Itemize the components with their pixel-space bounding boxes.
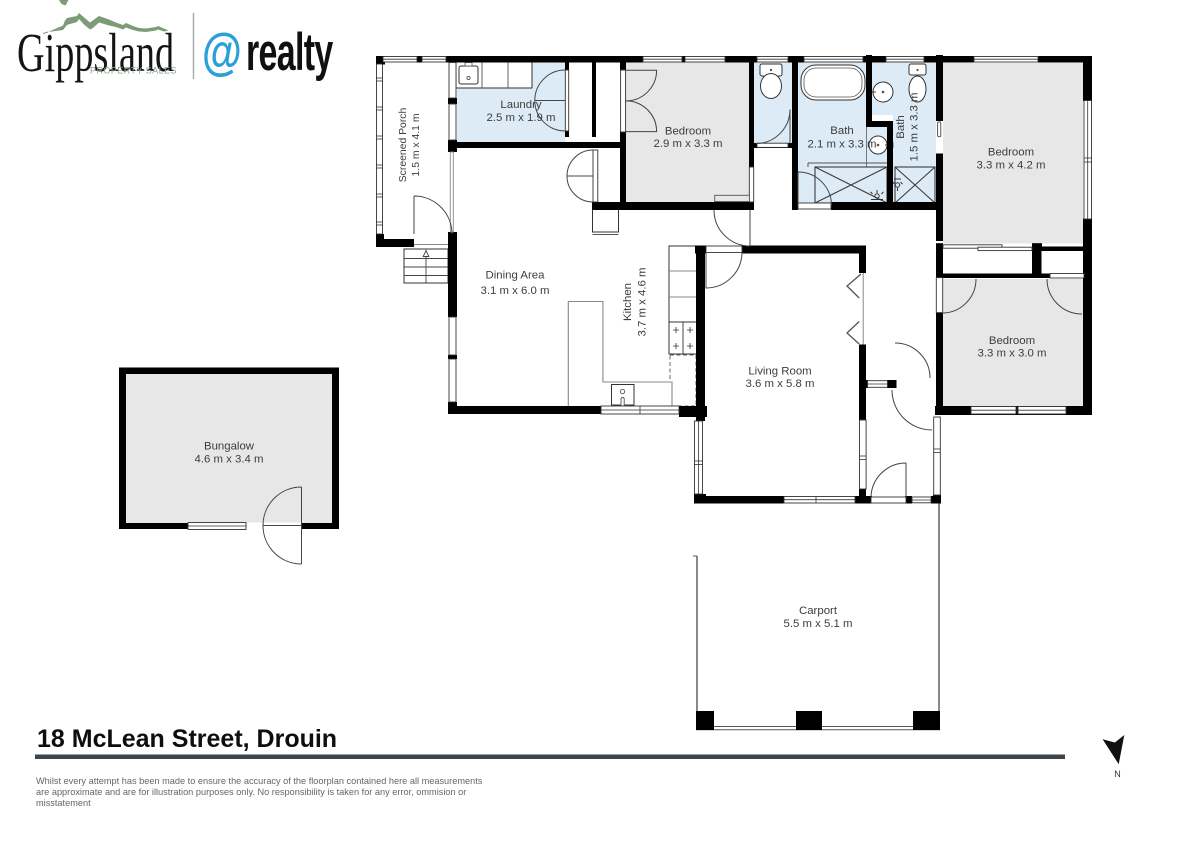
svg-text:Kitchen: Kitchen [622, 283, 634, 321]
svg-text:1.5 m x 4.1 m: 1.5 m x 4.1 m [411, 114, 422, 177]
svg-text:N: N [1114, 769, 1121, 779]
svg-text:Bedroom: Bedroom [988, 147, 1034, 159]
svg-text:3.3 m x 4.2 m: 3.3 m x 4.2 m [976, 160, 1045, 172]
svg-text:Screened Porch: Screened Porch [398, 108, 409, 183]
svg-text:Bedroom: Bedroom [665, 126, 711, 138]
svg-text:2.9 m x 3.3 m: 2.9 m x 3.3 m [653, 138, 722, 150]
svg-text:Whilst every attempt has been: Whilst every attempt has been made to en… [36, 776, 483, 786]
svg-text:2.5 m x 1.9 m: 2.5 m x 1.9 m [486, 112, 555, 124]
svg-text:Bath: Bath [830, 125, 853, 137]
svg-text:misstatement: misstatement [36, 798, 91, 808]
svg-text:Living Room: Living Room [748, 366, 811, 378]
svg-text:PROPERTY SALES: PROPERTY SALES [90, 66, 177, 76]
svg-text:1.5 m x 3.3 m: 1.5 m x 3.3 m [909, 92, 921, 161]
svg-text:Bath: Bath [895, 115, 907, 138]
svg-text:18 McLean Street, Drouin: 18 McLean Street, Drouin [37, 725, 337, 753]
svg-text:@: @ [202, 23, 242, 80]
svg-text:3.3 m x 3.0 m: 3.3 m x 3.0 m [977, 348, 1046, 360]
svg-text:Dining Area: Dining Area [486, 270, 546, 282]
svg-text:Laundry: Laundry [500, 99, 541, 111]
svg-text:are approximate and are for il: are approximate and are for illustration… [36, 787, 466, 797]
svg-text:realty: realty [246, 24, 333, 82]
svg-text:4.6 m x 3.4 m: 4.6 m x 3.4 m [194, 454, 263, 466]
svg-text:5.5 m x 5.1 m: 5.5 m x 5.1 m [783, 618, 852, 630]
svg-text:2.1 m x 3.3 m: 2.1 m x 3.3 m [807, 139, 876, 151]
svg-text:Bedroom: Bedroom [989, 335, 1035, 347]
svg-text:3.1 m x 6.0 m: 3.1 m x 6.0 m [480, 285, 549, 297]
svg-text:Carport: Carport [799, 605, 838, 617]
svg-text:Bungalow: Bungalow [204, 441, 255, 453]
svg-text:3.6 m x 5.8 m: 3.6 m x 5.8 m [745, 378, 814, 390]
svg-text:3.7 m x 4.6 m: 3.7 m x 4.6 m [637, 267, 649, 336]
